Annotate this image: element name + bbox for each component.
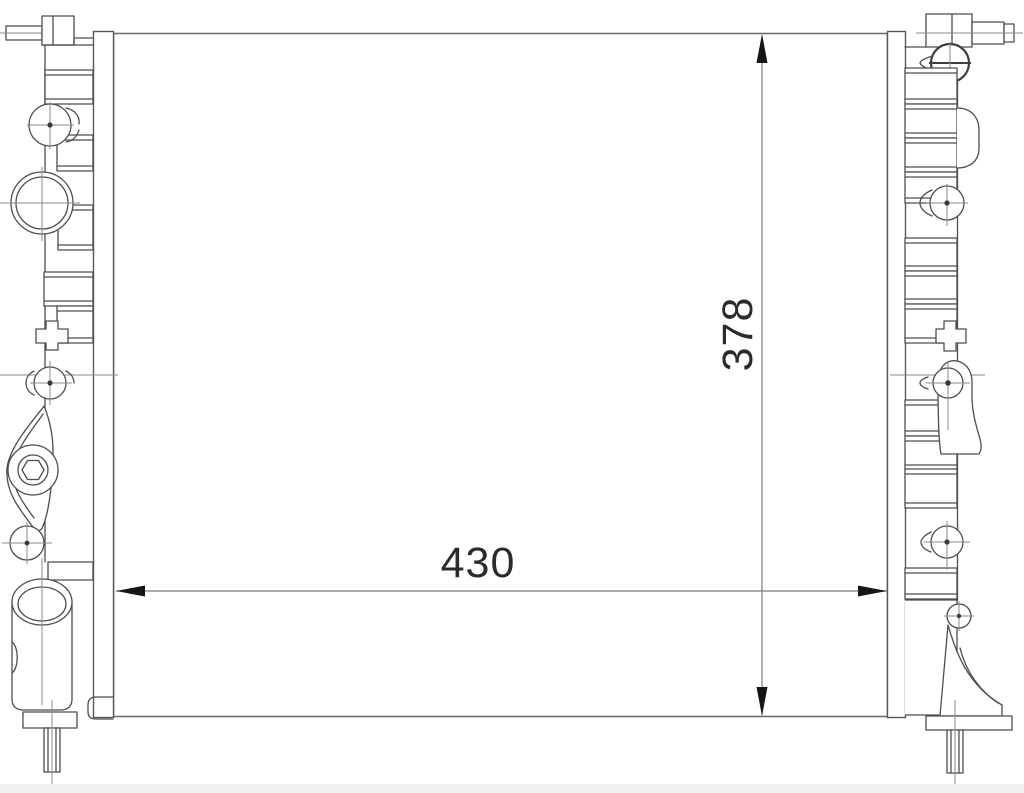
boss-center-dot — [944, 200, 949, 205]
boss-center-dot — [944, 539, 949, 544]
lower-mounting-boss-right — [921, 521, 970, 570]
drawing-canvas: 430 378 — [0, 0, 1024, 793]
inlet-pipe-assembly — [916, 14, 1023, 47]
boss-center-dot — [47, 380, 52, 385]
left-mounting-pin-assembly — [23, 700, 77, 786]
radiator-technical-drawing: 430 378 — [0, 0, 1024, 793]
filler-neck — [42, 16, 74, 45]
footer-band — [0, 784, 1024, 793]
radiator-core — [94, 32, 906, 718]
pipe-block — [926, 14, 972, 47]
height-dimension-label: 378 — [714, 297, 762, 372]
pin-flange — [23, 712, 77, 728]
tank-rib — [905, 469, 957, 508]
outlet-pipe-cylinder — [12, 558, 72, 710]
drain-housing — [7, 406, 58, 531]
foot-plate — [926, 716, 1012, 730]
boss-center-dot — [25, 541, 30, 546]
boss-center-dot — [957, 614, 961, 618]
boss-center-dot — [945, 380, 951, 386]
boss-center-dot — [47, 122, 52, 127]
side-bump — [957, 108, 979, 168]
foot-gusset — [940, 625, 1002, 716]
core-rectangle — [114, 34, 888, 717]
width-dimension-label: 430 — [441, 539, 516, 587]
drain-outer-circle — [8, 445, 58, 495]
right-tank — [890, 14, 1023, 788]
tank-bracket-bar — [48, 562, 93, 580]
